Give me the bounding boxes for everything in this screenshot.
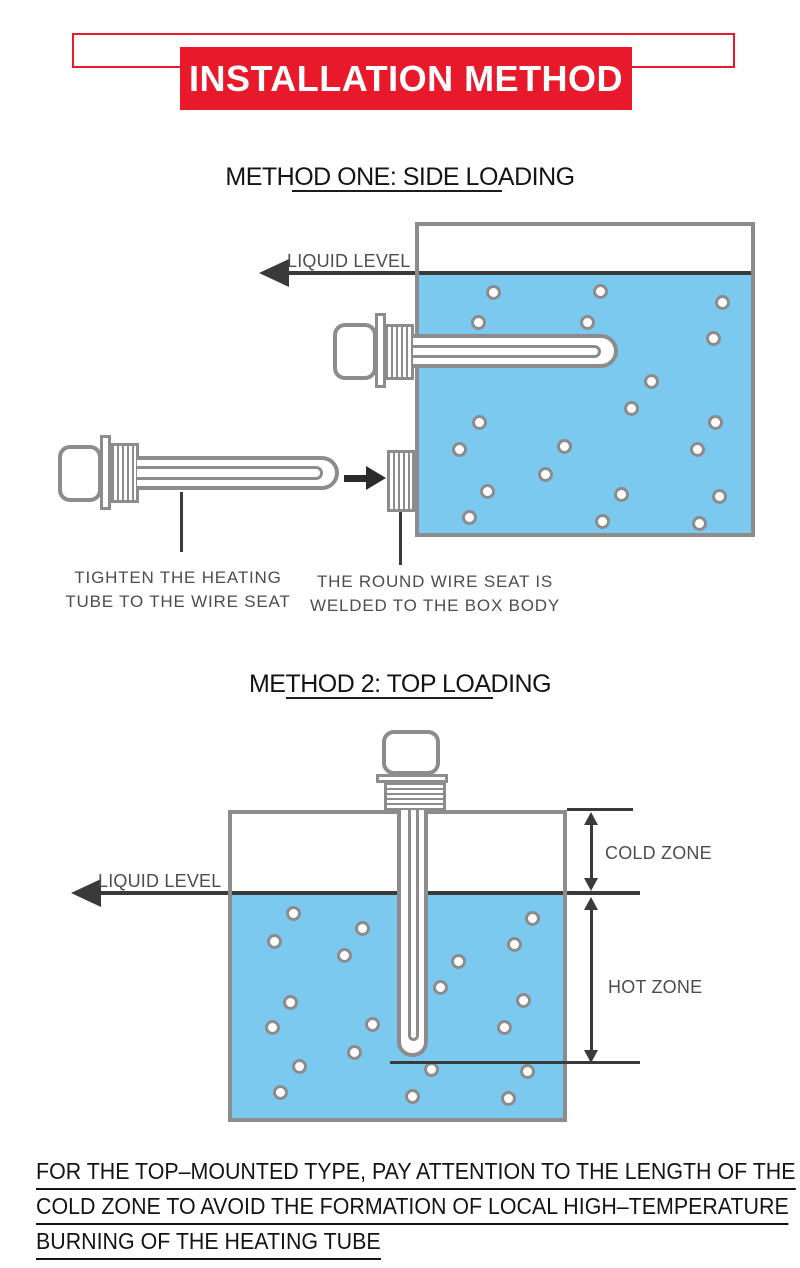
cold-zone-label: COLD ZONE [605,843,712,864]
banner-title: INSTALLATION METHOD [189,58,623,100]
top-heater-thread-neck [384,782,446,811]
left-arrowhead-icon [71,879,101,907]
installation-banner: INSTALLATION METHOD [180,47,632,110]
footer-line: BURNING OF THE HEATING TUBE [36,1228,796,1263]
caption-line: THE ROUND WIRE SEAT IS [300,570,570,594]
footer-note: FOR THE TOP–MOUNTED TYPE, PAY ATTENTION … [36,1158,796,1263]
caption-line: TIGHTEN THE HEATING [50,566,306,590]
hot-zone-extension-line [390,1061,640,1064]
insert-arrow-icon [366,466,386,490]
hot-zone-dimension-line [590,906,593,1053]
detached-heater-tube-inner [137,466,323,480]
top-heater-cap [382,730,440,775]
hot-zone-label: HOT ZONE [608,977,702,998]
leader-line-wire-seat [399,512,402,565]
detached-heater-flange-plate [100,435,111,510]
footer-line: FOR THE TOP–MOUNTED TYPE, PAY ATTENTION … [36,1158,796,1193]
footer-line: COLD ZONE TO AVOID THE FORMATION OF LOCA… [36,1193,796,1228]
caption-wire-seat-welded: THE ROUND WIRE SEAT IS WELDED TO THE BOX… [300,570,570,618]
caption-line: TUBE TO THE WIRE SEAT [50,590,306,614]
heater-cap [333,323,377,380]
method-two-heading: METHOD 2: TOP LOADING [0,670,800,699]
installation-method-page: INSTALLATION METHOD METHOD ONE: SIDE LOA… [0,0,800,1268]
round-wire-seat [387,450,415,512]
method-one-heading-underline [292,190,502,192]
liquid-level-label-top: LIQUID LEVEL [98,871,221,892]
down-arrowhead-icon [584,878,598,891]
liquid-level-label-side: LIQUID LEVEL [287,251,410,272]
method-two-heading-underline [286,697,493,699]
method-one-heading: METHOD ONE: SIDE LOADING [0,163,800,192]
leader-line-heater [180,492,183,552]
top-heater-tube-inner [408,810,419,1041]
cold-zone-extension-line [567,808,633,811]
left-arrowhead-icon [259,259,289,287]
side-tank [415,222,755,537]
detached-heater-cap [58,445,102,502]
caption-line: WELDED TO THE BOX BODY [300,594,570,618]
caption-tighten-tube: TIGHTEN THE HEATING TUBE TO THE WIRE SEA… [50,566,306,614]
cold-zone-dimension-line [590,820,593,882]
heater-thread-ribs [385,324,414,380]
detached-heater-thread-ribs [111,443,139,503]
heater-tube-inner [413,345,601,358]
